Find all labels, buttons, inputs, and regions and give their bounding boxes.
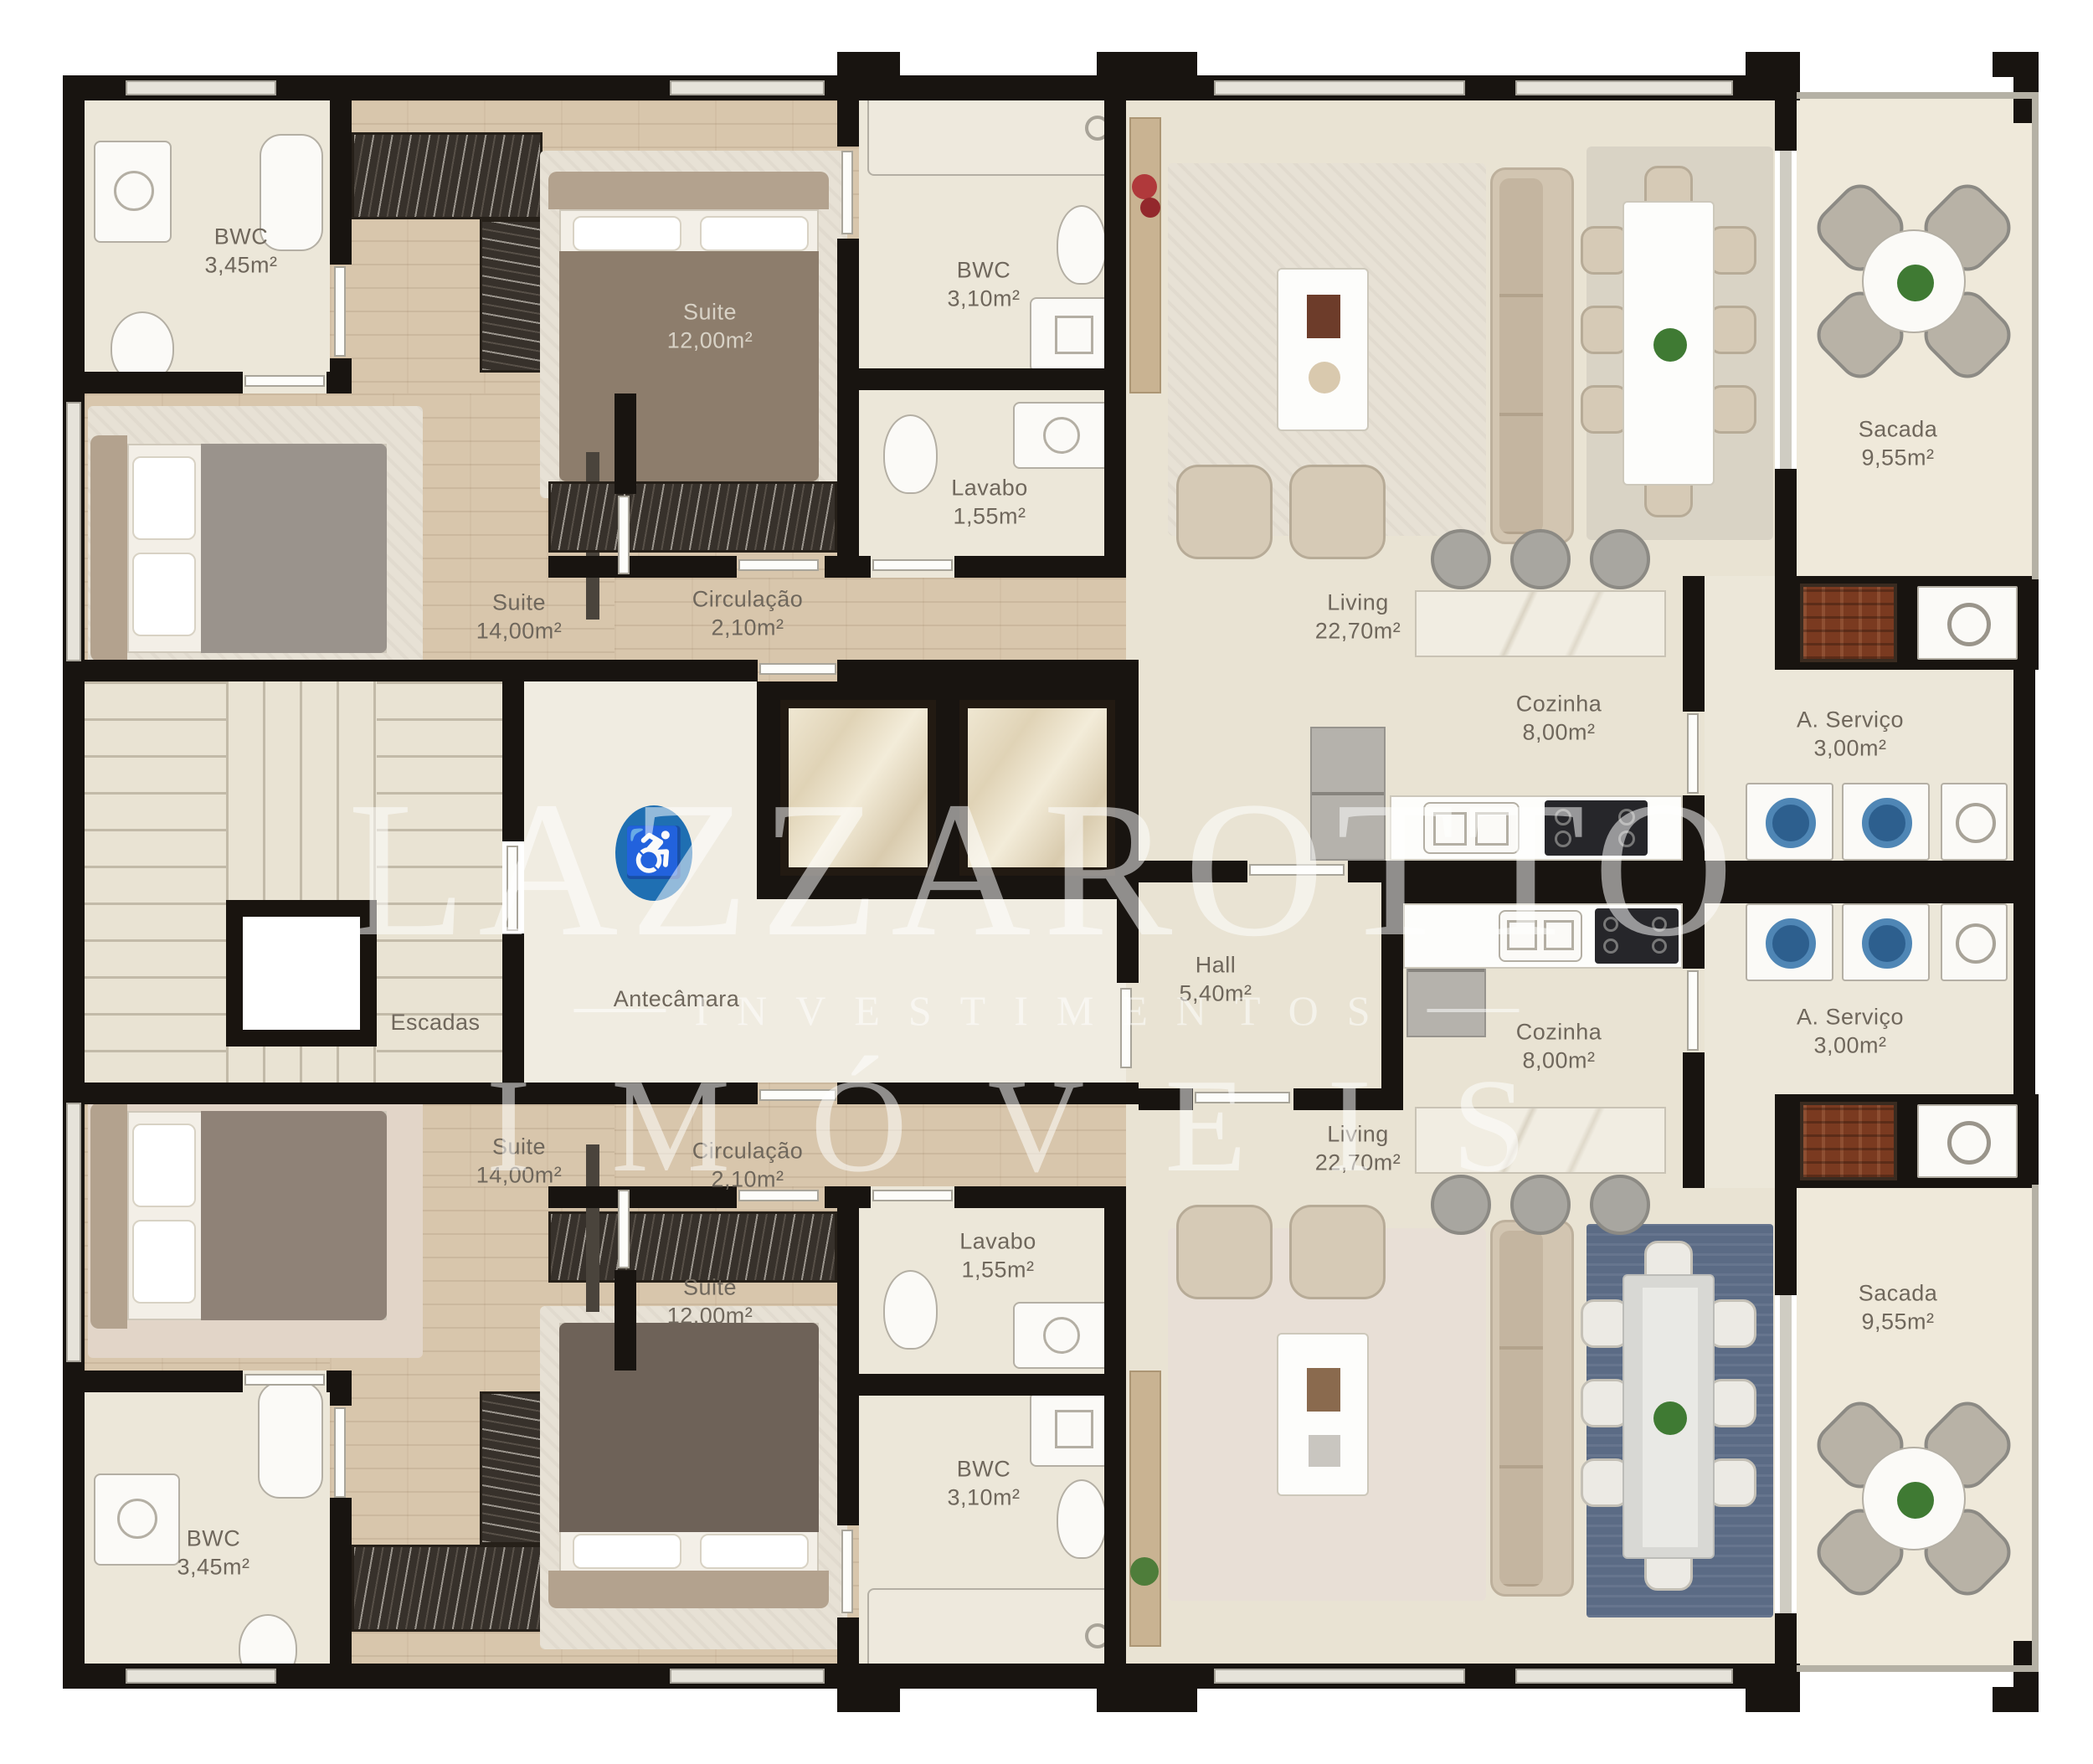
wall xyxy=(954,1186,1126,1208)
wall xyxy=(85,660,758,681)
dining-chair xyxy=(1708,1379,1756,1427)
sliding-glass-door xyxy=(1780,151,1792,469)
room-name: Circulação xyxy=(692,585,804,614)
room-label-sacada-bottom: Sacada9,55m² xyxy=(1859,1279,1938,1336)
plant xyxy=(1653,1401,1687,1435)
stairs-top-flight xyxy=(226,681,377,900)
room-area: 3,00m² xyxy=(1797,734,1904,763)
flower-decor xyxy=(1132,174,1157,199)
room-label-living-bottom: Living22,70m² xyxy=(1315,1120,1401,1177)
kitchen-sink xyxy=(1423,802,1520,854)
room-label-bwc310-top: BWC3,10m² xyxy=(947,256,1020,313)
room-name: Escadas xyxy=(390,1009,480,1037)
washer xyxy=(1746,783,1833,861)
room-label-cozinha-top: Cozinha8,00m² xyxy=(1516,690,1602,747)
burner xyxy=(1603,917,1618,932)
plant xyxy=(1897,265,1934,301)
vanity-sink xyxy=(1013,402,1113,469)
door xyxy=(759,663,836,675)
door xyxy=(872,559,953,571)
kitchen-island xyxy=(1415,590,1666,657)
bed-pillow xyxy=(132,553,196,636)
room-area: 5,40m² xyxy=(1179,980,1252,1008)
room-name: Lavabo xyxy=(959,1227,1036,1256)
window xyxy=(1214,1669,1465,1684)
window xyxy=(126,80,276,95)
door xyxy=(1249,864,1345,876)
room-label-servico-top: A. Serviço3,00m² xyxy=(1797,706,1904,763)
console-table xyxy=(1129,117,1161,393)
window xyxy=(1214,80,1465,95)
room-area: 3,45m² xyxy=(177,1553,249,1581)
door xyxy=(738,559,819,571)
wall xyxy=(548,556,737,578)
sink-bowl xyxy=(1043,1317,1080,1354)
room-area: 1,55m² xyxy=(951,502,1028,531)
coffee-table xyxy=(1277,1333,1369,1496)
wall xyxy=(954,556,1126,578)
wall xyxy=(1104,1186,1126,1688)
room-label-servico-bottom: A. Serviço3,00m² xyxy=(1797,1003,1904,1060)
window xyxy=(66,402,81,661)
room-label-living-top: Living22,70m² xyxy=(1315,589,1401,645)
room-name: Lavabo xyxy=(951,474,1028,502)
balcony-table xyxy=(1862,229,1966,333)
sink-bowl xyxy=(114,171,154,211)
door xyxy=(759,1089,836,1101)
dining-chair xyxy=(1708,1458,1756,1507)
wardrobe xyxy=(352,132,543,219)
room-label-suite14-bottom: Suite14,00m² xyxy=(476,1133,563,1190)
room-label-antecamara: Antecâmara xyxy=(614,985,740,1014)
wall xyxy=(1139,1088,1193,1110)
bed-blanket xyxy=(559,251,819,481)
room-area: 14,00m² xyxy=(476,1161,563,1190)
door xyxy=(1687,713,1699,794)
room-name: BWC xyxy=(947,1455,1020,1484)
room-name: Circulação xyxy=(692,1137,804,1165)
sofa-cushions xyxy=(1499,1231,1543,1587)
vanity-sink xyxy=(94,1473,180,1566)
balcony-sink-counter xyxy=(1917,586,2018,660)
dresser xyxy=(586,1144,599,1312)
washer xyxy=(1746,903,1833,981)
room-name: BWC xyxy=(177,1525,249,1553)
wall xyxy=(1403,861,2035,903)
decor xyxy=(1309,1435,1340,1467)
washer-door xyxy=(1766,918,1816,969)
door xyxy=(618,496,630,574)
toilet xyxy=(1057,205,1107,285)
wardrobe xyxy=(480,219,543,373)
bed-pillow xyxy=(700,1534,809,1569)
decor xyxy=(1307,295,1340,338)
room-area: 2,10m² xyxy=(692,1165,804,1194)
window xyxy=(1515,80,1733,95)
tub-bowl xyxy=(1956,923,1996,964)
door xyxy=(1120,988,1132,1068)
bed-pillow xyxy=(132,1220,196,1304)
burner xyxy=(1555,831,1571,847)
barbecue-grill xyxy=(1800,584,1897,662)
armchair xyxy=(1289,465,1386,559)
room-area: 3,45m² xyxy=(204,251,277,280)
room-name: Living xyxy=(1315,589,1401,617)
console-table xyxy=(1129,1371,1161,1647)
room-label-lavabo-bottom: Lavabo1,55m² xyxy=(959,1227,1036,1284)
sink-basin xyxy=(1507,920,1537,950)
stair-void xyxy=(226,900,377,1047)
room-area: 9,55m² xyxy=(1859,444,1938,472)
room-name: Suite xyxy=(667,298,753,327)
balcony-sink-counter xyxy=(1917,1104,2018,1178)
room-area: 12,00m² xyxy=(667,1302,753,1330)
bed-pillow xyxy=(132,1124,196,1207)
refrigerator xyxy=(1310,727,1386,861)
balcony-parapet xyxy=(2032,92,2039,579)
wall xyxy=(85,372,243,393)
dining-chair xyxy=(1708,1299,1756,1348)
wall xyxy=(1381,861,1403,1110)
wall xyxy=(615,1270,636,1371)
room-label-escadas: Escadas xyxy=(390,1009,480,1037)
door xyxy=(618,1190,630,1268)
wall xyxy=(63,75,85,1689)
wall xyxy=(1683,1052,1705,1188)
washer xyxy=(1842,783,1930,861)
room-name: Sacada xyxy=(1859,415,1938,444)
bed-blanket xyxy=(559,1323,819,1532)
room-area: 8,00m² xyxy=(1516,1047,1602,1075)
sofa xyxy=(1490,1220,1574,1597)
room-name: Cozinha xyxy=(1516,690,1602,718)
decor xyxy=(1309,362,1340,393)
room-label-sacada-top: Sacada9,55m² xyxy=(1859,415,1938,472)
room-name: A. Serviço xyxy=(1797,706,1904,734)
bar-stool xyxy=(1431,1175,1491,1235)
elevator-car xyxy=(780,700,936,876)
room-area: 3,10m² xyxy=(947,1484,1020,1512)
room-label-bwc345-top: BWC3,45m² xyxy=(204,223,277,280)
bed-headboard xyxy=(90,435,127,661)
sink-basin xyxy=(1475,812,1509,846)
wardrobe xyxy=(480,1391,543,1545)
burner xyxy=(1555,809,1571,825)
flower-decor xyxy=(1140,198,1160,218)
wall xyxy=(502,681,524,841)
window xyxy=(126,1669,276,1684)
bar-stool xyxy=(1510,529,1571,589)
room-name: Suite xyxy=(476,1133,563,1161)
room-name: Sacada xyxy=(1859,1279,1938,1308)
barbecue-grill xyxy=(1800,1102,1897,1180)
wall xyxy=(1104,76,1126,578)
room-name: A. Serviço xyxy=(1797,1003,1904,1031)
balcony-parapet xyxy=(2032,1185,2039,1672)
washer xyxy=(1842,903,1930,981)
room-label-suite14-top: Suite14,00m² xyxy=(476,589,563,645)
wall xyxy=(837,76,859,147)
fridge-divider xyxy=(1408,969,1484,972)
room-label-suite12-bottom: Suite12,00m² xyxy=(667,1273,753,1330)
balcony-parapet xyxy=(1797,1665,2039,1672)
burner xyxy=(1618,831,1635,847)
armchair xyxy=(1176,1205,1273,1299)
wall xyxy=(502,933,524,1083)
dining-table xyxy=(1622,1274,1715,1559)
door xyxy=(841,151,853,234)
room-label-lavabo-top: Lavabo1,55m² xyxy=(951,474,1028,531)
bed-pillow xyxy=(573,216,681,251)
room-label-circulacao-bottom: Circulação2,10m² xyxy=(692,1137,804,1194)
plant xyxy=(1897,1482,1934,1519)
wall xyxy=(837,239,859,578)
room-area: 3,00m² xyxy=(1797,1031,1904,1060)
sink-bowl xyxy=(1947,1121,1991,1165)
sofa xyxy=(1490,167,1574,544)
sink-bowl xyxy=(1055,316,1093,354)
door xyxy=(244,375,325,387)
door xyxy=(1687,970,1699,1051)
room-area: 12,00m² xyxy=(667,327,753,355)
room-name: BWC xyxy=(204,223,277,251)
room-label-cozinha-bottom: Cozinha8,00m² xyxy=(1516,1018,1602,1075)
room-label-bwc345-bottom: BWC3,45m² xyxy=(177,1525,249,1581)
cooktop xyxy=(1595,908,1679,964)
sliding-glass-door xyxy=(1780,1295,1792,1613)
cooktop xyxy=(1545,800,1648,856)
tub-bowl xyxy=(1956,803,1996,843)
door xyxy=(334,1407,346,1498)
toilet xyxy=(883,414,938,494)
wall xyxy=(1775,1188,1797,1295)
window xyxy=(670,1669,825,1684)
window xyxy=(66,1103,81,1362)
wall xyxy=(327,372,352,393)
door xyxy=(334,266,346,357)
room-label-hall: Hall5,40m² xyxy=(1179,951,1252,1008)
plant xyxy=(1653,328,1687,362)
bar-stool xyxy=(1510,1175,1571,1235)
bed-headboard xyxy=(548,172,829,209)
wall xyxy=(1775,76,1797,151)
room-label-suite12-top: Suite12,00m² xyxy=(667,298,753,355)
wall xyxy=(837,660,1139,681)
fridge-divider xyxy=(1312,792,1384,795)
wall xyxy=(330,1498,352,1688)
room-label-bwc310-bottom: BWC3,10m² xyxy=(947,1455,1020,1512)
laundry-tub xyxy=(1941,903,2008,981)
bed-pillow xyxy=(700,216,809,251)
wall xyxy=(1683,795,1705,871)
plant xyxy=(1130,1557,1159,1586)
wall xyxy=(1117,899,1139,983)
room-name: Antecâmara xyxy=(614,985,740,1014)
floor-plan: ♿ xyxy=(0,0,2093,1764)
sofa-cushions xyxy=(1499,178,1543,534)
kitchen-sink xyxy=(1499,910,1582,962)
dining-chair xyxy=(1708,226,1756,275)
washer-door xyxy=(1766,798,1816,848)
room-area: 3,10m² xyxy=(947,285,1020,313)
bathtub xyxy=(258,1381,323,1499)
wall xyxy=(327,1371,352,1392)
elevator-car xyxy=(959,700,1115,876)
bed-blanket xyxy=(201,444,387,653)
wardrobe xyxy=(548,481,837,553)
burner xyxy=(1652,917,1667,932)
bed-headboard xyxy=(548,1571,829,1608)
door xyxy=(1195,1092,1290,1103)
wardrobe xyxy=(352,1545,543,1632)
wall xyxy=(615,393,636,494)
bed-blanket xyxy=(201,1111,387,1320)
wall xyxy=(1139,861,1247,882)
bar-stool xyxy=(1431,529,1491,589)
room-area: 22,70m² xyxy=(1315,617,1401,645)
sink-basin xyxy=(1433,812,1467,846)
bed-pillow xyxy=(132,456,196,540)
balcony-table xyxy=(1862,1447,1966,1551)
room-name: Cozinha xyxy=(1516,1018,1602,1047)
wall xyxy=(1775,1613,1797,1688)
bed-headboard xyxy=(90,1103,127,1329)
burner xyxy=(1603,939,1618,954)
door xyxy=(244,1374,325,1386)
sink-basin xyxy=(1544,920,1574,950)
window xyxy=(1515,1669,1733,1684)
wall xyxy=(1683,576,1705,712)
vanity-sink xyxy=(1013,1302,1113,1369)
wall xyxy=(1293,1088,1403,1110)
wall xyxy=(837,1186,859,1525)
room-area: 2,10m² xyxy=(692,614,804,642)
kitchen-island xyxy=(1415,1107,1666,1174)
bar-stool xyxy=(1590,529,1650,589)
balcony-parapet xyxy=(1797,92,2039,99)
room-name: Suite xyxy=(476,589,563,617)
dining-chair xyxy=(1708,306,1756,354)
wall xyxy=(1775,469,1797,576)
dining-table xyxy=(1622,201,1715,486)
wall xyxy=(330,76,352,265)
armchair xyxy=(1289,1205,1386,1299)
room-area: 22,70m² xyxy=(1315,1149,1401,1177)
room-name: Suite xyxy=(667,1273,753,1302)
room-area: 14,00m² xyxy=(476,617,563,645)
door xyxy=(507,846,518,931)
wall xyxy=(1683,893,1705,969)
washer-door xyxy=(1862,798,1912,848)
room-area: 9,55m² xyxy=(1859,1308,1938,1336)
burner xyxy=(1618,809,1635,825)
stairs-bottom-flight xyxy=(226,1047,377,1083)
room-name: Living xyxy=(1315,1120,1401,1149)
wall xyxy=(837,1083,1139,1104)
bar-stool xyxy=(1590,1175,1650,1235)
dining-chair xyxy=(1708,385,1756,434)
burner xyxy=(1652,939,1667,954)
door xyxy=(841,1530,853,1613)
wall xyxy=(837,1617,859,1688)
washer-door xyxy=(1862,918,1912,969)
door xyxy=(872,1190,953,1201)
sink-bowl xyxy=(1055,1410,1093,1448)
room-name: BWC xyxy=(947,256,1020,285)
room-name: Hall xyxy=(1179,951,1252,980)
wall xyxy=(859,368,1126,390)
room-area: 1,55m² xyxy=(959,1256,1036,1284)
decor xyxy=(1307,1368,1340,1412)
wall xyxy=(85,1371,243,1392)
armchair xyxy=(1176,465,1273,559)
sink-bowl xyxy=(1947,603,1991,646)
sink-bowl xyxy=(1043,417,1080,454)
window xyxy=(670,80,825,95)
wall xyxy=(859,1374,1126,1396)
laundry-tub xyxy=(1941,783,2008,861)
bed-pillow xyxy=(573,1534,681,1569)
toilet xyxy=(1057,1479,1107,1559)
stairs-left-flight xyxy=(85,681,226,1083)
toilet xyxy=(883,1270,938,1350)
sink-bowl xyxy=(117,1499,157,1539)
vanity-sink xyxy=(94,141,172,243)
room-label-circulacao-top: Circulação2,10m² xyxy=(692,585,804,642)
room-area: 8,00m² xyxy=(1516,718,1602,747)
wall xyxy=(85,1083,758,1104)
coffee-table xyxy=(1277,268,1369,431)
accessibility-icon: ♿ xyxy=(615,805,692,901)
